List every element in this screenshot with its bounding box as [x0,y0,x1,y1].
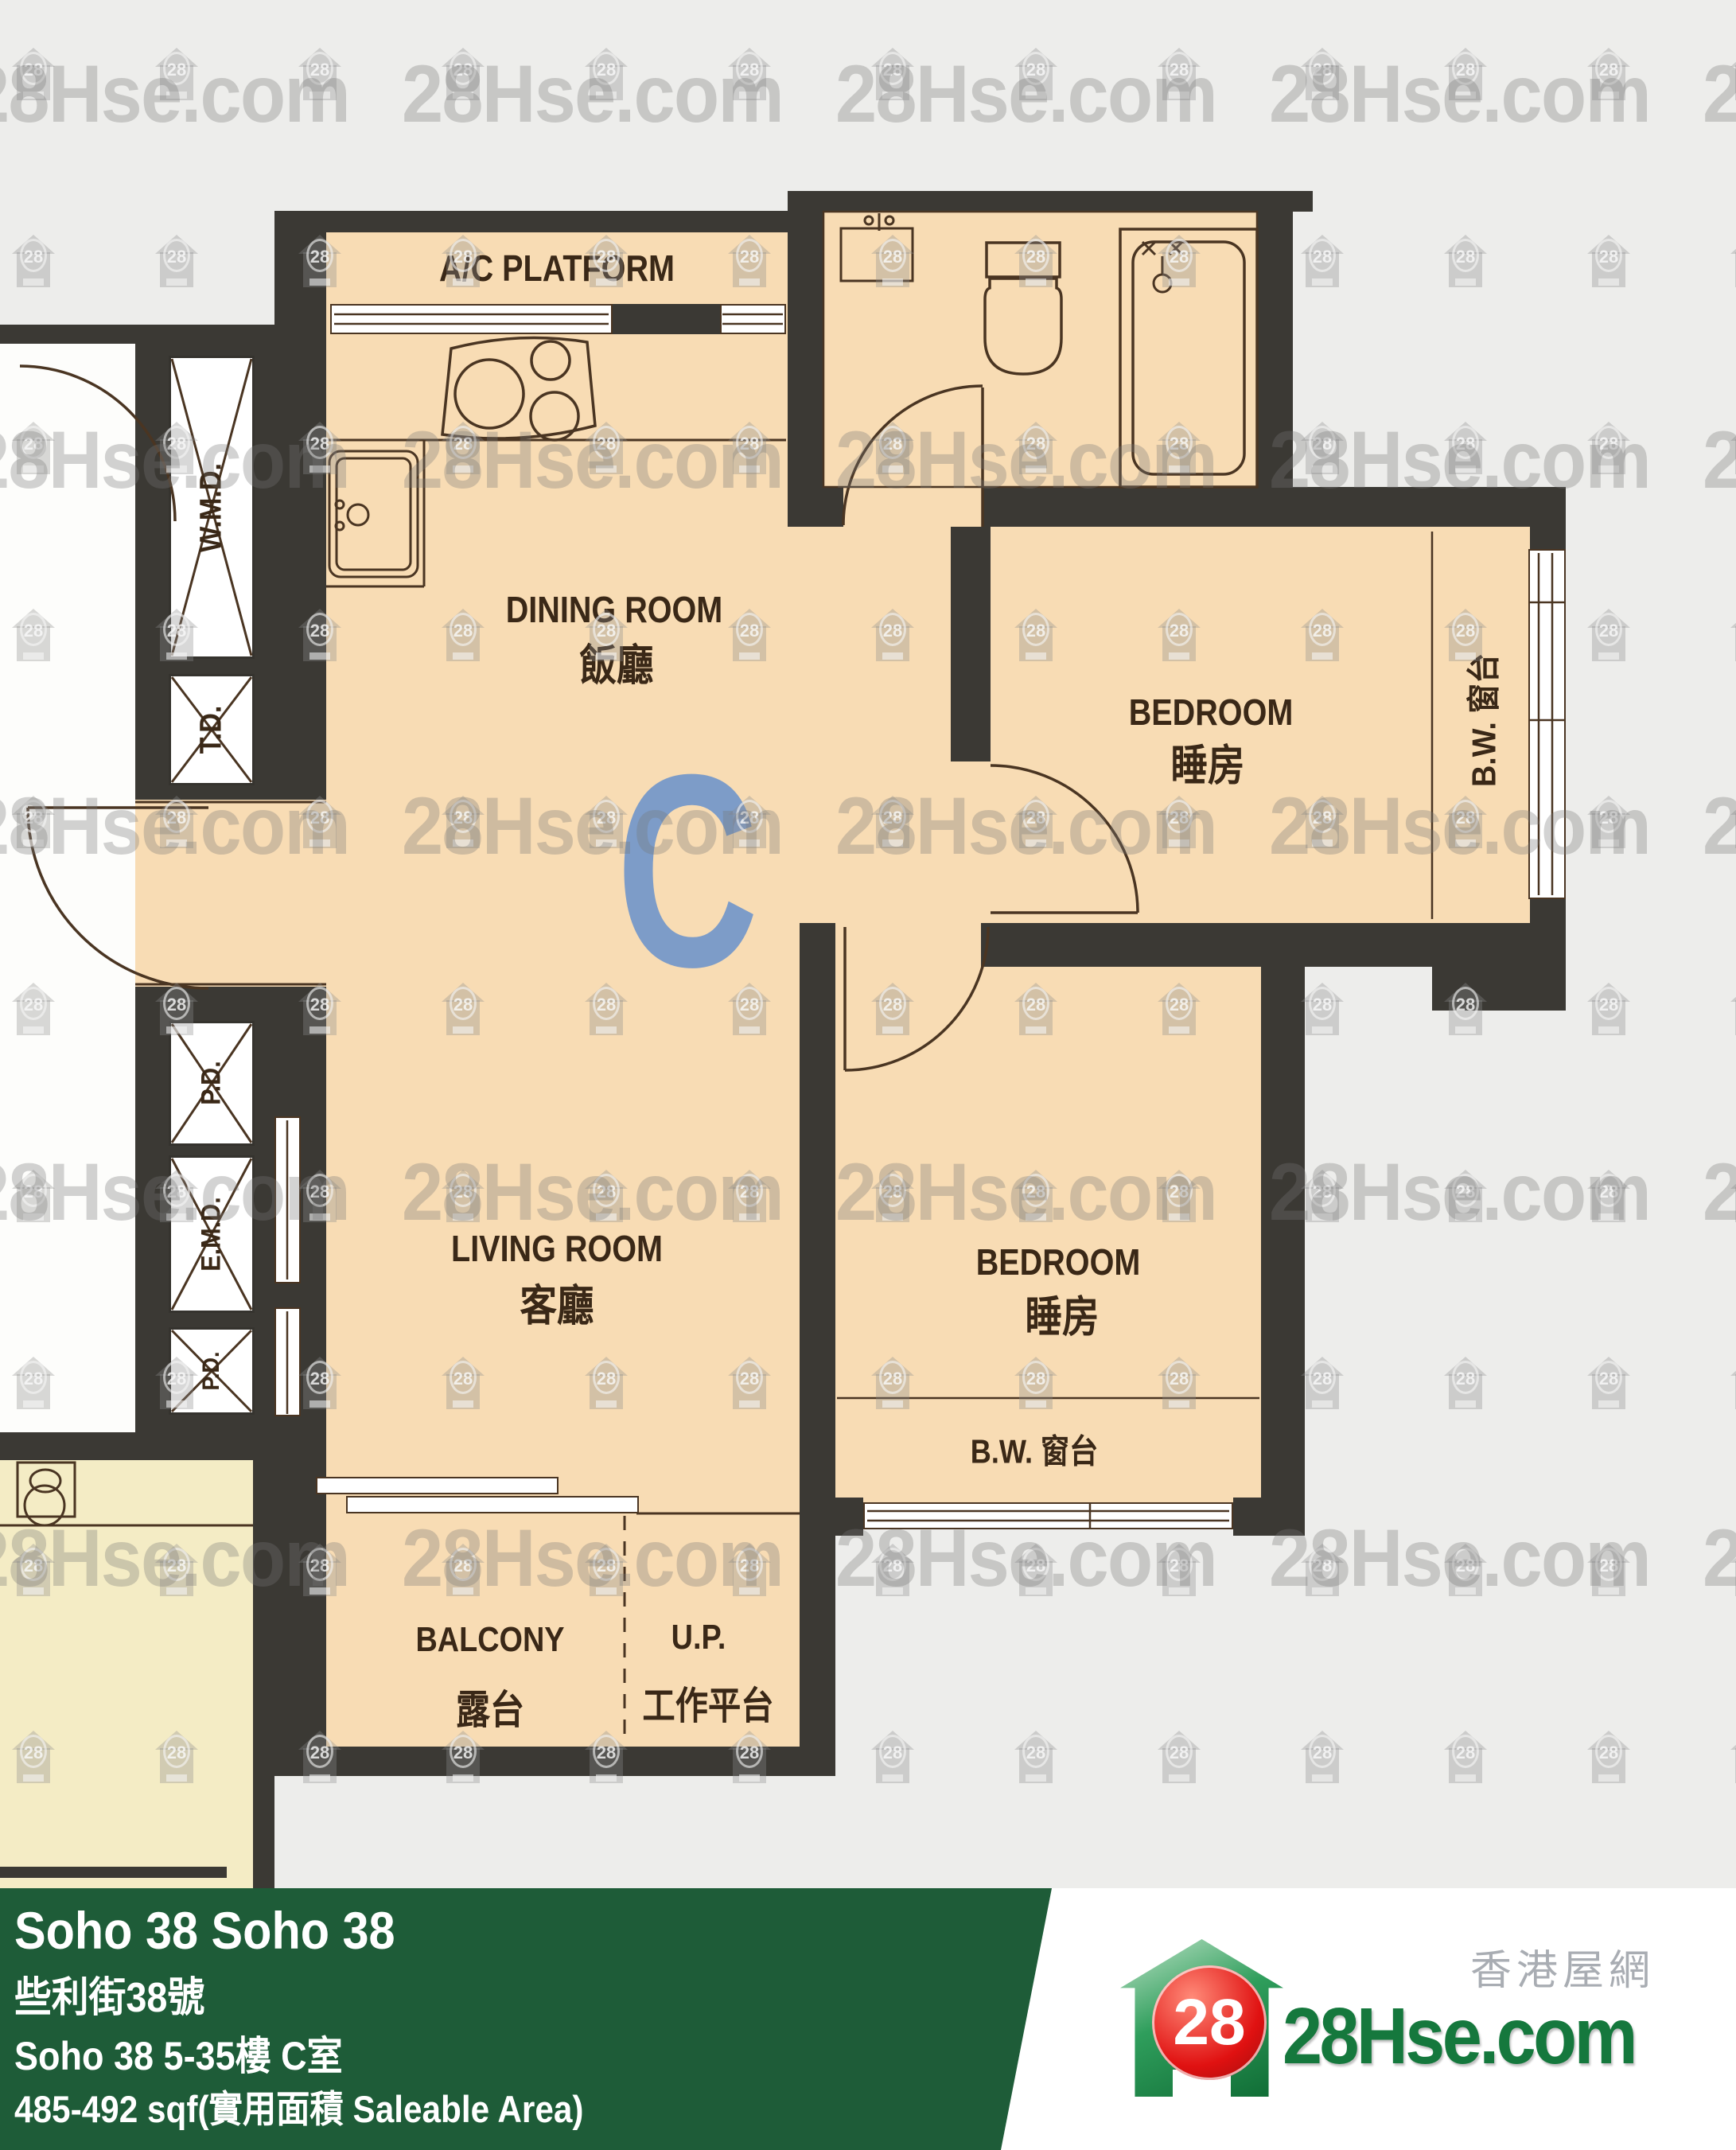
label-living-en: LIVING ROOM [451,1227,663,1270]
label-bedroom1-en: BEDROOM [1129,691,1294,734]
label-unit-letter: C [616,734,758,1009]
label-shaft-td: T.D. [195,706,229,754]
bathroom-sink [841,213,913,281]
cooktop [442,338,595,440]
label-bedroom2-cn: 睡房 [1026,1282,1100,1345]
banner-area-info: 485-492 sqf(實用面積 Saleable Area) [14,2078,583,2133]
fixtures-layer [0,0,1736,2150]
label-balcony-cn: 露台 [456,1678,524,1735]
label-shaft-emd: E.M.D. [197,1197,228,1272]
label-up-en: U.P. [671,1618,726,1657]
label-shaft-wmd: W.M.D. [195,463,229,552]
label-up-cn: 工作平台 [642,1674,773,1730]
neighbor-cooktop [0,1463,253,1525]
label-dining-cn: 飯廳 [580,630,654,693]
floorplan-page: A/C PLATFORM DINING ROOM 飯廳 C BEDROOM 睡房… [0,0,1736,2150]
logo-site-name: 28Hse.com [1283,1991,1635,2082]
label-balcony-en: BALCONY [415,1620,564,1660]
label-shaft-pd-top: P.D. [197,1061,228,1105]
bathroom-outline [823,212,1257,487]
banner-address-cn: 些利街38號 [14,1964,204,2023]
label-shaft-pd-bottom: P.D. [198,1351,225,1390]
label-bedroom2-en: BEDROOM [976,1241,1141,1283]
logo-tagline-cn: 香港屋網 [1470,1937,1655,1996]
louvre-lines [287,314,1564,1528]
logo-badge-28: 28 [1152,1965,1267,2080]
kitchen-counter [326,440,786,586]
kitchen-sink [329,451,418,577]
door-arcs [20,366,1138,1070]
label-ac-platform: A/C PLATFORM [439,247,675,290]
banner-floor-unit: Soho 38 5-35樓 C室 [14,2024,343,2082]
label-dining-en: DINING ROOM [506,588,723,631]
bathtub [1120,229,1257,487]
toilet [985,243,1061,374]
label-living-cn: 客廳 [520,1271,594,1334]
banner-title: Soho 38 Soho 38 [14,1900,395,1961]
label-bedroom1-cn: 睡房 [1171,730,1245,793]
label-bw-bedroom1: B.W. 窗台 [1458,653,1506,787]
label-bw-bedroom2: B.W. 窗台 [971,1425,1099,1474]
